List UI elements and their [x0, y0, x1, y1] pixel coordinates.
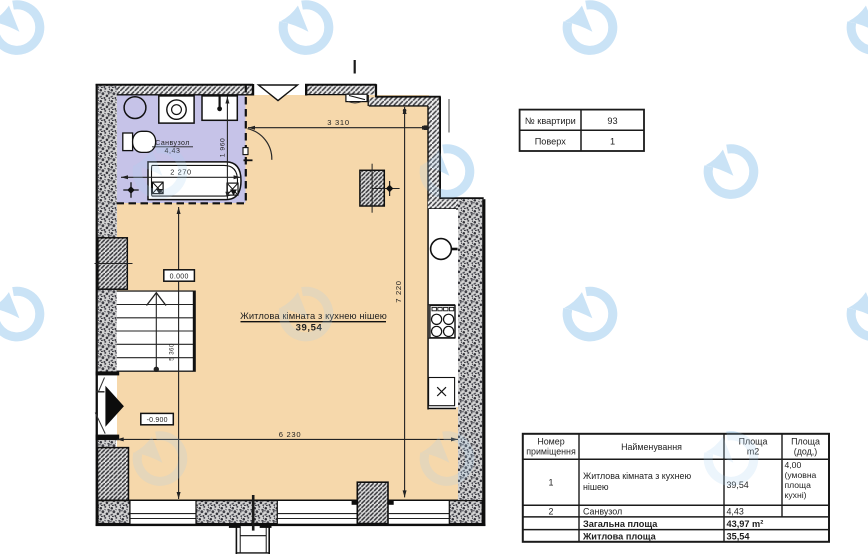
svg-text:нішею: нішею: [583, 482, 609, 492]
svg-text:2: 2: [549, 506, 554, 516]
svg-text:Номер: Номер: [537, 437, 564, 447]
svg-text:Площа: Площа: [791, 437, 820, 447]
svg-text:43,97 m²: 43,97 m²: [727, 519, 764, 529]
svg-text:3 310: 3 310: [327, 118, 350, 127]
svg-text:4,00: 4,00: [785, 460, 802, 470]
svg-text:кухні): кухні): [785, 490, 807, 500]
svg-text:приміщення: приміщення: [526, 447, 576, 457]
svg-text:Санвузол: Санвузол: [583, 506, 622, 516]
svg-text:Житлова кімната з кухнею нішею: Житлова кімната з кухнею нішею: [240, 310, 387, 321]
svg-text:№ квартири: № квартири: [525, 116, 576, 126]
svg-text:Найменування: Найменування: [621, 442, 682, 452]
svg-text:1 960: 1 960: [219, 138, 226, 158]
svg-text:1: 1: [549, 478, 554, 488]
svg-text:Житлова площа: Житлова площа: [582, 531, 657, 541]
svg-text:(умовна: (умовна: [785, 470, 817, 480]
svg-text:0.000: 0.000: [170, 273, 189, 280]
svg-text:5 360: 5 360: [169, 343, 176, 361]
svg-text:4,43: 4,43: [727, 506, 744, 516]
svg-text:7 220: 7 220: [394, 280, 403, 303]
svg-text:35,54: 35,54: [727, 531, 751, 541]
svg-text:6 230: 6 230: [279, 430, 302, 439]
svg-text:93: 93: [607, 116, 617, 126]
svg-text:-0.900: -0.900: [147, 417, 168, 424]
svg-text:площа: площа: [785, 480, 812, 490]
svg-text:Загальна площа: Загальна площа: [583, 519, 658, 529]
svg-text:1: 1: [610, 136, 615, 146]
svg-text:Житлова кімната з кухнею: Житлова кімната з кухнею: [583, 471, 691, 481]
svg-text:(дод,): (дод,): [794, 447, 818, 457]
svg-text:Поверх: Поверх: [535, 136, 567, 146]
